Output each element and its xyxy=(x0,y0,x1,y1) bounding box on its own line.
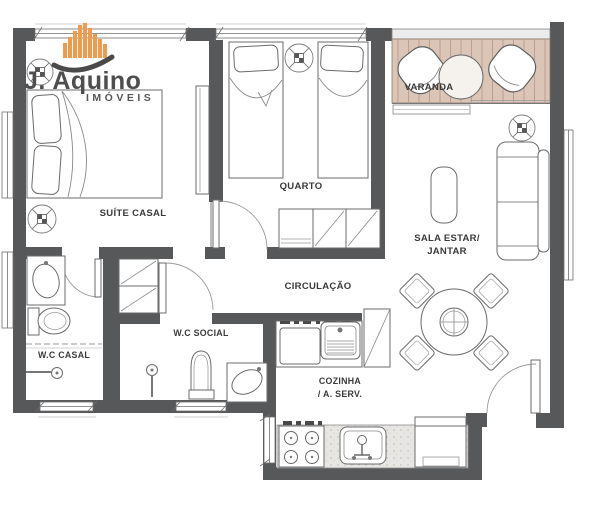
quarto-furniture xyxy=(213,42,380,249)
wall xyxy=(103,253,120,413)
logo-tagline: IMÓVEIS xyxy=(86,91,154,104)
wardrobe xyxy=(196,86,209,194)
wall xyxy=(212,313,263,324)
console-table xyxy=(431,167,457,223)
shower-icon xyxy=(26,368,63,379)
wall xyxy=(186,28,216,41)
door-leaf xyxy=(213,200,219,248)
ceiling-fan-icon xyxy=(28,205,56,233)
room-label-circulacao: CIRCULAÇÃO xyxy=(285,281,352,292)
door-leaf xyxy=(159,263,166,313)
sofa-back xyxy=(538,150,549,252)
ceiling-fan-icon xyxy=(509,115,535,141)
entrance-door-arc xyxy=(487,364,536,413)
ceiling-fan-icon xyxy=(285,44,313,72)
floor-plan-svg: SUÍTE CASAL QUARTO VARANDA SALA ESTAR/ J… xyxy=(0,0,608,531)
toilet xyxy=(189,351,214,399)
entrance-door-leaf xyxy=(531,360,540,413)
room-label-wc-casal: W.C CASAL xyxy=(38,350,90,360)
room-label-sala-line2: JANTAR xyxy=(427,246,467,257)
pillow-icon xyxy=(31,145,61,195)
tall-cabinet xyxy=(364,309,390,367)
bathroom-sink xyxy=(227,363,267,402)
wall xyxy=(536,413,564,428)
door-arc xyxy=(62,259,99,297)
kitchen-sink xyxy=(340,427,386,464)
wall xyxy=(209,40,223,202)
sala-furniture xyxy=(399,142,549,413)
sofa xyxy=(497,142,539,260)
wc-casal-fixtures xyxy=(26,256,102,379)
room-label-quarto: QUARTO xyxy=(280,181,323,192)
door-arc xyxy=(219,201,267,249)
cooktop-cabinet xyxy=(280,328,320,364)
pillow-icon xyxy=(233,45,278,72)
door-arc xyxy=(166,263,213,310)
stove xyxy=(279,426,324,467)
washing-machine xyxy=(415,417,466,467)
balcony-railing xyxy=(392,29,550,39)
wall xyxy=(267,247,385,259)
wardrobe xyxy=(279,209,380,248)
balcony xyxy=(392,29,550,114)
shower-icon xyxy=(147,365,158,398)
logo-skyline-icon xyxy=(63,23,107,58)
room-label-wc-social: W.C SOCIAL xyxy=(173,328,229,338)
wall xyxy=(276,313,362,321)
room-label-sala-line1: SALA ESTAR/ xyxy=(414,233,480,244)
room-label-varanda: VARANDA xyxy=(405,82,454,93)
wall xyxy=(103,313,160,324)
pillow-icon xyxy=(320,45,363,72)
floor-plan-image: SUÍTE CASAL QUARTO VARANDA SALA ESTAR/ J… xyxy=(0,0,608,531)
linen-closet xyxy=(119,259,158,313)
wall xyxy=(13,28,35,41)
wall xyxy=(263,467,482,480)
wall xyxy=(205,247,225,259)
room-label-cozinha-line1: COZINHA xyxy=(319,376,362,386)
dining-set xyxy=(399,273,510,372)
wall xyxy=(466,413,487,427)
backsplash-marks xyxy=(283,421,322,425)
bathroom-sink xyxy=(27,256,65,305)
room-label-cozinha-line2: / A. SERV. xyxy=(318,389,362,399)
room-label-suite: SUÍTE CASAL xyxy=(100,208,167,219)
toilet xyxy=(28,308,70,335)
wall xyxy=(550,22,564,428)
kitchen-sink xyxy=(321,322,360,359)
logo-name: J. Aquino xyxy=(24,67,141,95)
door-leaf xyxy=(95,259,101,297)
pillow-icon xyxy=(31,94,61,144)
